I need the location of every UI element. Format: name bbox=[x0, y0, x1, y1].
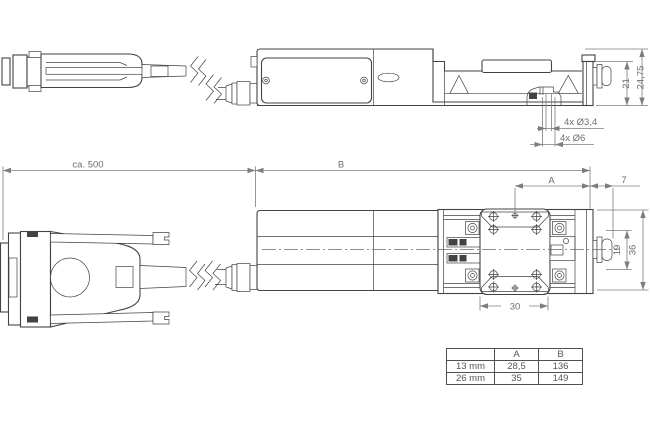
shaft-housing bbox=[550, 237, 575, 261]
top-view-drawing: ca. 500 B A 7 30 bbox=[1, 160, 649, 328]
bearing bbox=[466, 222, 480, 235]
cable-top bbox=[140, 261, 226, 290]
table-header-b: B bbox=[539, 349, 583, 361]
value-a: 35 bbox=[495, 373, 539, 385]
variant-table: A B 13 mm 28,5 136 26 mm 35 149 bbox=[446, 348, 583, 385]
mount-tab bbox=[251, 57, 257, 68]
cable-break-icon bbox=[191, 57, 199, 83]
motor-cover-panel bbox=[262, 58, 372, 103]
dim-total-width-label: 36 bbox=[628, 245, 639, 256]
dim-cable-length-label: ca. 500 bbox=[72, 160, 103, 171]
carriage-plate-side bbox=[482, 60, 552, 73]
dim-a-label: A bbox=[548, 176, 555, 187]
table-header-row: A B bbox=[447, 349, 583, 361]
cable-top-run bbox=[140, 266, 186, 289]
table-header-a: A bbox=[495, 349, 539, 361]
cable-break-icon bbox=[190, 261, 198, 287]
bearing bbox=[553, 269, 567, 282]
jack-screw-side bbox=[46, 68, 153, 75]
side-view-drawing: 21 24,75 4x Ø3,4 4x Ø6 bbox=[2, 49, 648, 147]
value-a: 28,5 bbox=[495, 361, 539, 373]
dim-overhang-label: 7 bbox=[621, 175, 626, 186]
dim-24-75-label: 24,75 bbox=[636, 66, 647, 90]
motor-plug-side bbox=[226, 82, 257, 106]
carriage-plate-top bbox=[480, 209, 550, 295]
motor-plug-top bbox=[226, 264, 257, 292]
dsub-clip bbox=[27, 317, 38, 323]
jack-screw-fork bbox=[153, 312, 169, 324]
strain-relief bbox=[151, 66, 168, 77]
dim-holes-large-label: 4x Ø6 bbox=[560, 133, 585, 144]
bearing bbox=[466, 269, 480, 282]
dim-21-label: 21 bbox=[621, 78, 632, 89]
table-corner-cell bbox=[447, 349, 495, 361]
value-b: 149 bbox=[539, 373, 583, 385]
variant-label: 26 mm bbox=[447, 373, 495, 385]
hood-detail-rect bbox=[116, 267, 133, 288]
jack-screw-top bbox=[51, 234, 154, 245]
jack-screw-fork bbox=[153, 233, 169, 245]
dsub-hood-rear bbox=[21, 232, 51, 328]
dsub-clip bbox=[27, 231, 38, 237]
connector-knob-side bbox=[593, 65, 611, 89]
actuator-side bbox=[251, 49, 611, 106]
dim-pitch-label: 19 bbox=[612, 245, 623, 256]
cable-break-icon bbox=[205, 261, 213, 287]
actuator-top bbox=[257, 209, 620, 295]
cable-break-icon bbox=[198, 264, 206, 290]
dim-holes-small-label: 4x Ø3,4 bbox=[564, 117, 597, 128]
cable-side bbox=[142, 57, 226, 104]
dsub-clip-top bbox=[29, 52, 41, 58]
cable-break-icon bbox=[206, 75, 214, 101]
motor-body-top bbox=[257, 211, 438, 291]
dim-b-label: B bbox=[338, 160, 344, 171]
dim-plate-width-label: 30 bbox=[510, 302, 521, 313]
triangle-marker bbox=[450, 76, 468, 94]
dsub-connector-side bbox=[2, 52, 153, 92]
variant-label: 13 mm bbox=[447, 361, 495, 373]
table-row: 13 mm 28,5 136 bbox=[447, 361, 583, 373]
value-b: 136 bbox=[539, 361, 583, 373]
cable-break-icon bbox=[213, 264, 221, 290]
dsub-cap bbox=[2, 58, 10, 85]
thumbscrew-circle bbox=[51, 258, 90, 297]
cable-break-icon bbox=[199, 60, 207, 86]
dsub-flange bbox=[13, 55, 27, 88]
dsub-clip-bottom bbox=[29, 86, 41, 92]
technical-drawing-page: 21 24,75 4x Ø3,4 4x Ø6 bbox=[0, 0, 650, 438]
triangle-marker bbox=[558, 76, 578, 94]
table-row: 26 mm 35 149 bbox=[447, 373, 583, 385]
bearing bbox=[553, 222, 567, 235]
dsub-flange-top bbox=[1, 243, 9, 312]
